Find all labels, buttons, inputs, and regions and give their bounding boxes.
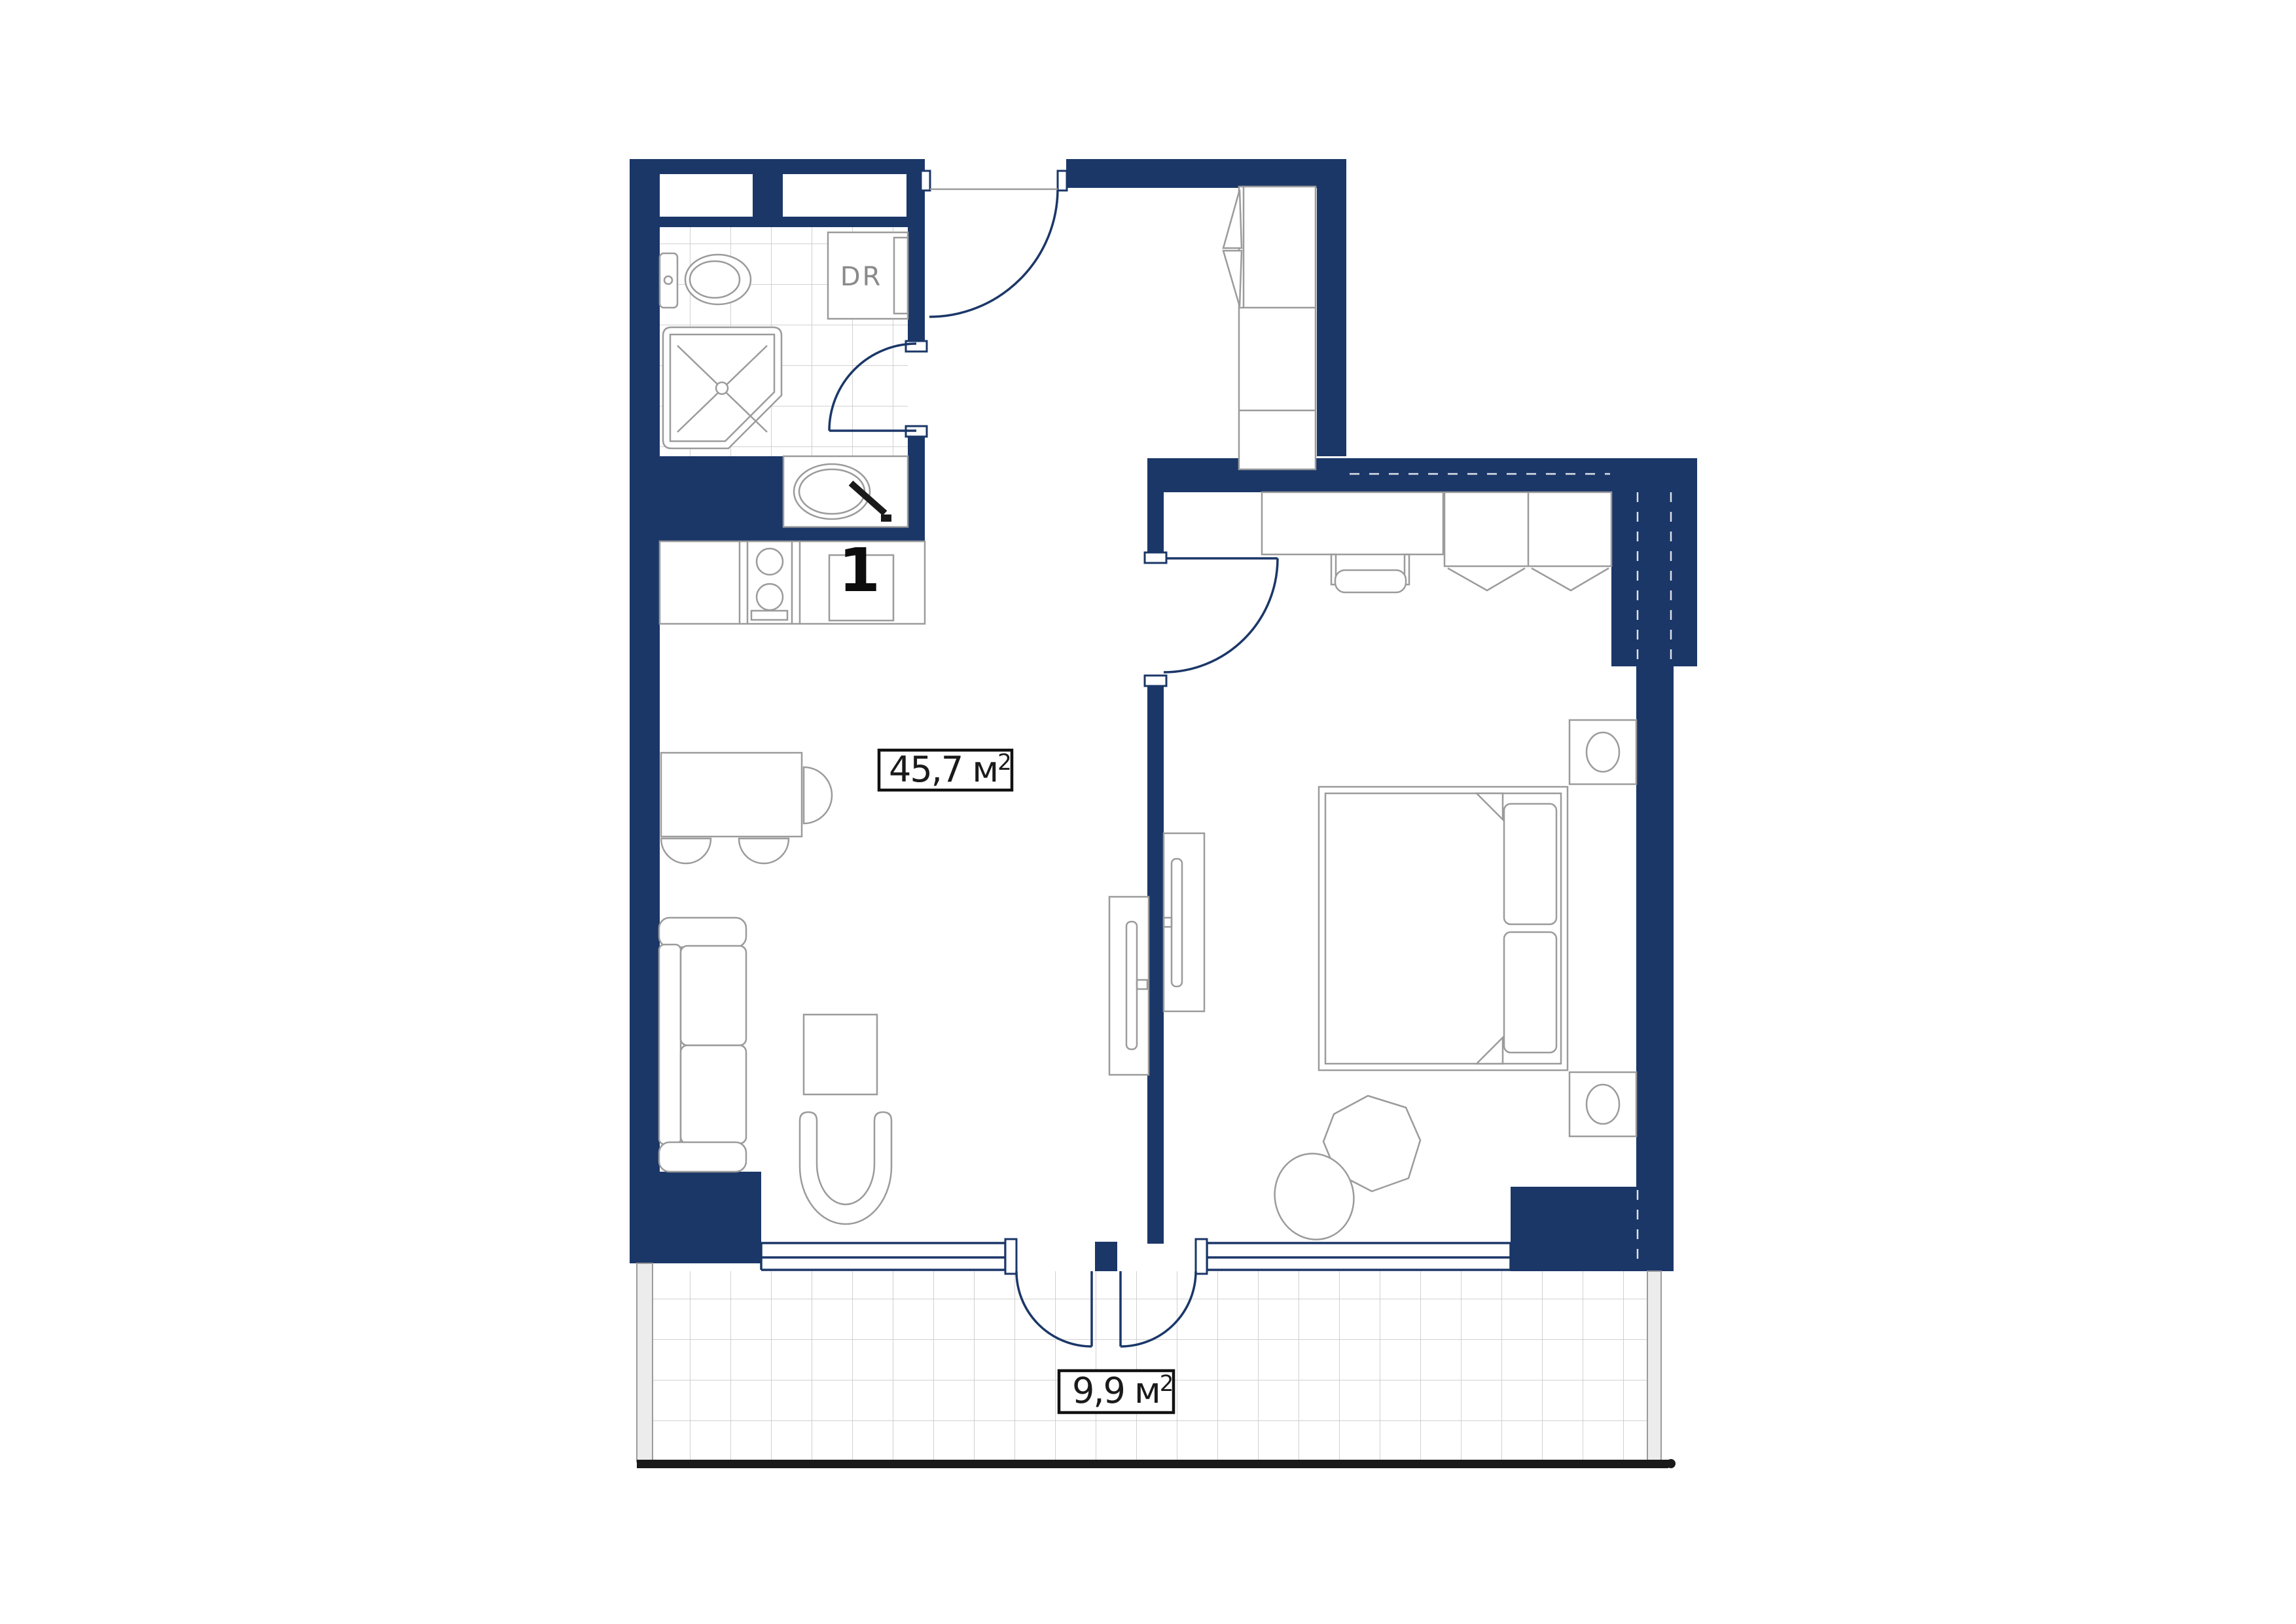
wall-top-hallway <box>1066 159 1346 188</box>
wall-bathroom-south <box>630 456 783 541</box>
hob-burner <box>757 584 783 610</box>
closet-door-swing <box>1223 190 1242 248</box>
shaft-niche-left <box>660 174 753 217</box>
coffee-table <box>804 1015 877 1094</box>
dryer-label: DR <box>840 262 883 292</box>
area-unit: м <box>962 749 997 790</box>
pouf <box>1265 1096 1420 1248</box>
bedroom-door <box>1145 552 1278 686</box>
room-number: 1 <box>838 535 880 605</box>
main-area-label: 45,7 м2 <box>879 749 1012 790</box>
living-room: 45,7 м2 <box>659 749 1149 1224</box>
railing-end-cap <box>1666 1459 1676 1468</box>
area-sup: 2 <box>1160 1371 1173 1397</box>
area-sup: 2 <box>997 749 1011 776</box>
door-swing-arc <box>1164 558 1278 672</box>
dining-table <box>661 753 802 837</box>
entrance-door <box>921 171 1067 317</box>
tv-screen <box>1126 922 1137 1049</box>
door-jamb <box>1196 1239 1207 1274</box>
wall-partition-upper <box>1147 492 1164 554</box>
wall-balcony-door-post <box>1095 1242 1117 1271</box>
balcony-side-right <box>1647 1271 1661 1462</box>
chair-seat <box>1335 570 1406 592</box>
kitchen: 1 <box>660 535 925 624</box>
door-jamb <box>1145 676 1166 686</box>
desk <box>1262 492 1443 554</box>
armchair-shape <box>800 1112 891 1224</box>
pillow <box>1504 804 1556 924</box>
hallway-closet <box>1223 187 1316 469</box>
wall-corner-bottom-left <box>630 1172 761 1263</box>
wall-partition-lower <box>1147 686 1164 1244</box>
sofa <box>659 918 746 1172</box>
area-unit: м <box>1124 1370 1160 1411</box>
sofa-armrest <box>659 1142 746 1172</box>
wall-column-right <box>1611 488 1697 666</box>
hob-burner <box>757 549 783 575</box>
wall-bathroom-right-lower <box>908 435 925 541</box>
bedroom <box>1145 492 1636 1248</box>
area-label-text: 9,9 м2 <box>1072 1370 1172 1411</box>
dining-set <box>661 753 832 863</box>
nightstand-bottom <box>1570 1072 1636 1136</box>
toilet-tank <box>660 253 677 308</box>
sofa-cushion <box>681 946 746 1045</box>
balcony-side-left <box>637 1263 653 1462</box>
sofa-cushion <box>681 1045 746 1144</box>
shaft-niche-right <box>783 174 906 217</box>
bed <box>1319 787 1568 1070</box>
door-swing-arc <box>929 190 1058 317</box>
wardrobe-door-swing <box>1448 568 1525 590</box>
armchair <box>800 1112 891 1224</box>
floor-plan-page: DR <box>0 0 2296 1624</box>
washbasin-niche <box>783 456 908 527</box>
dining-chair <box>661 839 711 863</box>
oven-handle <box>751 611 787 620</box>
wall-hallway-right <box>1317 188 1346 456</box>
closet-door-swing <box>1223 251 1242 306</box>
nightstand <box>1570 1072 1636 1136</box>
windows <box>761 1243 1511 1270</box>
dining-chair <box>739 839 789 863</box>
sofa-back <box>659 945 681 1144</box>
door-jamb <box>921 171 930 190</box>
door-jamb <box>1145 552 1166 563</box>
window-bedroom <box>1207 1243 1511 1270</box>
wardrobe-door-swing <box>1532 568 1609 590</box>
area-label-text: 45,7 м2 <box>889 749 1011 790</box>
faucet-base <box>881 514 891 522</box>
area-value: 45,7 <box>889 749 962 790</box>
door-jamb <box>1005 1239 1016 1274</box>
desk-chair <box>1331 554 1409 592</box>
nightstand-top <box>1570 720 1636 784</box>
toilet <box>660 253 751 308</box>
wall-right <box>1636 666 1674 1187</box>
shower-drain <box>716 382 728 394</box>
wall-left <box>630 227 660 1172</box>
area-value: 9,9 <box>1072 1370 1124 1411</box>
balcony-tile-floor <box>653 1271 1647 1462</box>
balcony-area-label: 9,9 м2 <box>1059 1370 1174 1413</box>
closet-body <box>1239 187 1316 469</box>
floor-plan-drawing: DR <box>0 0 2296 1624</box>
wall-corner-bottom-right <box>1511 1187 1674 1271</box>
bedroom-wardrobe <box>1444 492 1611 590</box>
pillow <box>1504 932 1556 1053</box>
nightstand <box>1570 720 1636 784</box>
door-jamb <box>1058 171 1067 190</box>
dining-chair <box>804 767 832 823</box>
wall-bedroom-top <box>1147 458 1697 492</box>
balcony-railing <box>637 1460 1668 1468</box>
sofa-armrest <box>659 918 746 947</box>
tv-bedroom <box>1164 833 1204 1011</box>
tv-screen <box>1172 859 1182 986</box>
window-living <box>761 1243 1005 1270</box>
dryer-unit: DR <box>828 232 908 319</box>
tv-living <box>1109 897 1149 1075</box>
tv-console <box>1164 833 1204 1011</box>
